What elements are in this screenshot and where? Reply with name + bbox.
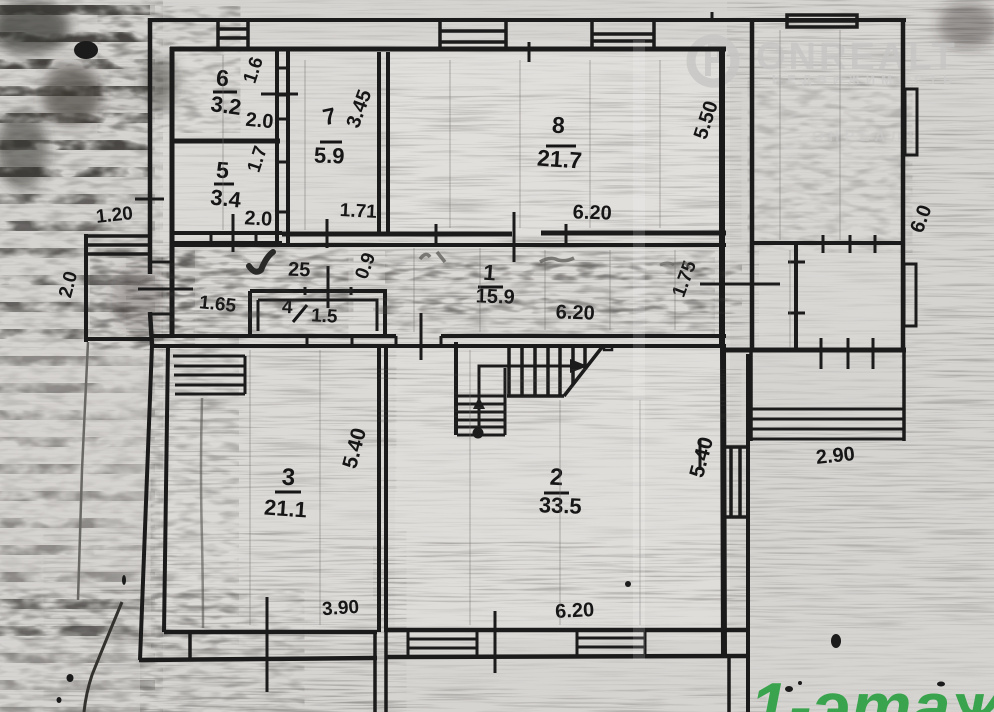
svg-text:6.20: 6.20 [572, 201, 612, 224]
svg-text:3.4: 3.4 [209, 185, 243, 213]
svg-text:3: 3 [281, 464, 296, 492]
svg-text:8: 8 [551, 112, 565, 139]
svg-text:1.71: 1.71 [339, 200, 377, 223]
svg-text:5.9: 5.9 [314, 142, 345, 168]
svg-text:1-этаж: 1-этаж [750, 669, 994, 712]
svg-text:2.90: 2.90 [815, 443, 856, 469]
svg-text:21.7: 21.7 [536, 144, 582, 173]
svg-text:2: 2 [549, 464, 564, 492]
svg-text:3.90: 3.90 [321, 597, 359, 621]
svg-text:1.20: 1.20 [95, 203, 134, 228]
svg-text:2.0: 2.0 [245, 109, 275, 133]
svg-text:3.2: 3.2 [209, 91, 243, 120]
svg-text:2.0: 2.0 [244, 207, 273, 230]
svg-text:НЕДВИЖИМОСТЬ: НЕДВИЖИМОСТЬ [772, 72, 958, 87]
svg-text:21.1: 21.1 [263, 495, 307, 523]
